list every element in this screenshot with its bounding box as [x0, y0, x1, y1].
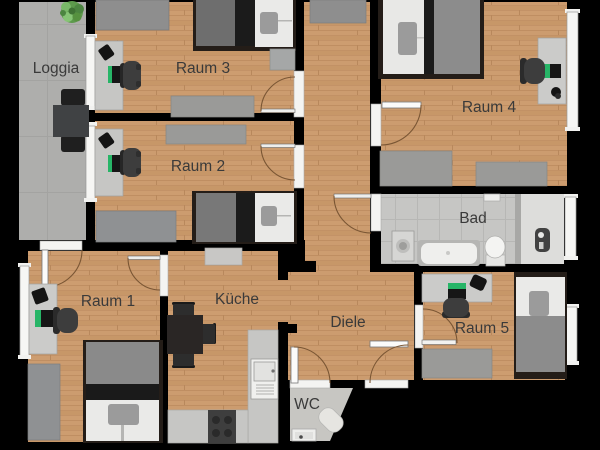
- svg-text:Raum 5: Raum 5: [455, 320, 509, 337]
- svg-text:Raum 2: Raum 2: [171, 158, 225, 175]
- svg-text:Raum 3: Raum 3: [176, 60, 230, 77]
- svg-text:Küche: Küche: [215, 291, 259, 308]
- svg-text:WC: WC: [294, 396, 320, 413]
- svg-text:Raum 4: Raum 4: [462, 99, 517, 116]
- svg-text:Diele: Diele: [330, 314, 365, 331]
- svg-text:Raum 1: Raum 1: [81, 293, 135, 310]
- svg-text:Bad: Bad: [459, 210, 487, 227]
- svg-text:Loggia: Loggia: [33, 60, 80, 77]
